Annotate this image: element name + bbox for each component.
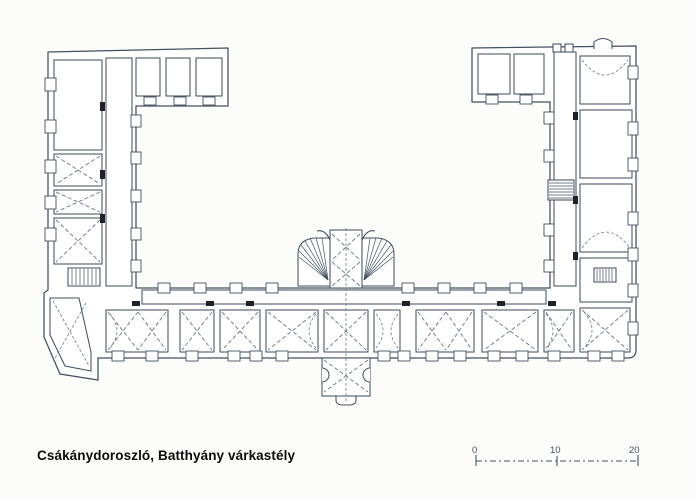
scale-label-20: 20 bbox=[629, 445, 640, 456]
scale-label-10: 10 bbox=[550, 445, 561, 456]
floor-plan-drawing: 0 10 20 bbox=[0, 0, 695, 500]
scale-label-0: 0 bbox=[472, 445, 477, 456]
scale-bar: 0 10 20 bbox=[472, 445, 640, 466]
south-wing-rooms bbox=[106, 308, 630, 352]
west-staircase bbox=[68, 268, 100, 286]
plan-caption: Csákánydoroszló, Batthyány várkastély bbox=[37, 448, 295, 463]
west-wing-rooms bbox=[54, 154, 102, 264]
scanned-plan-page: 0 10 20 Csákánydoroszló, Batthyány várka… bbox=[0, 0, 695, 500]
east-wing-rooms bbox=[580, 39, 632, 303]
